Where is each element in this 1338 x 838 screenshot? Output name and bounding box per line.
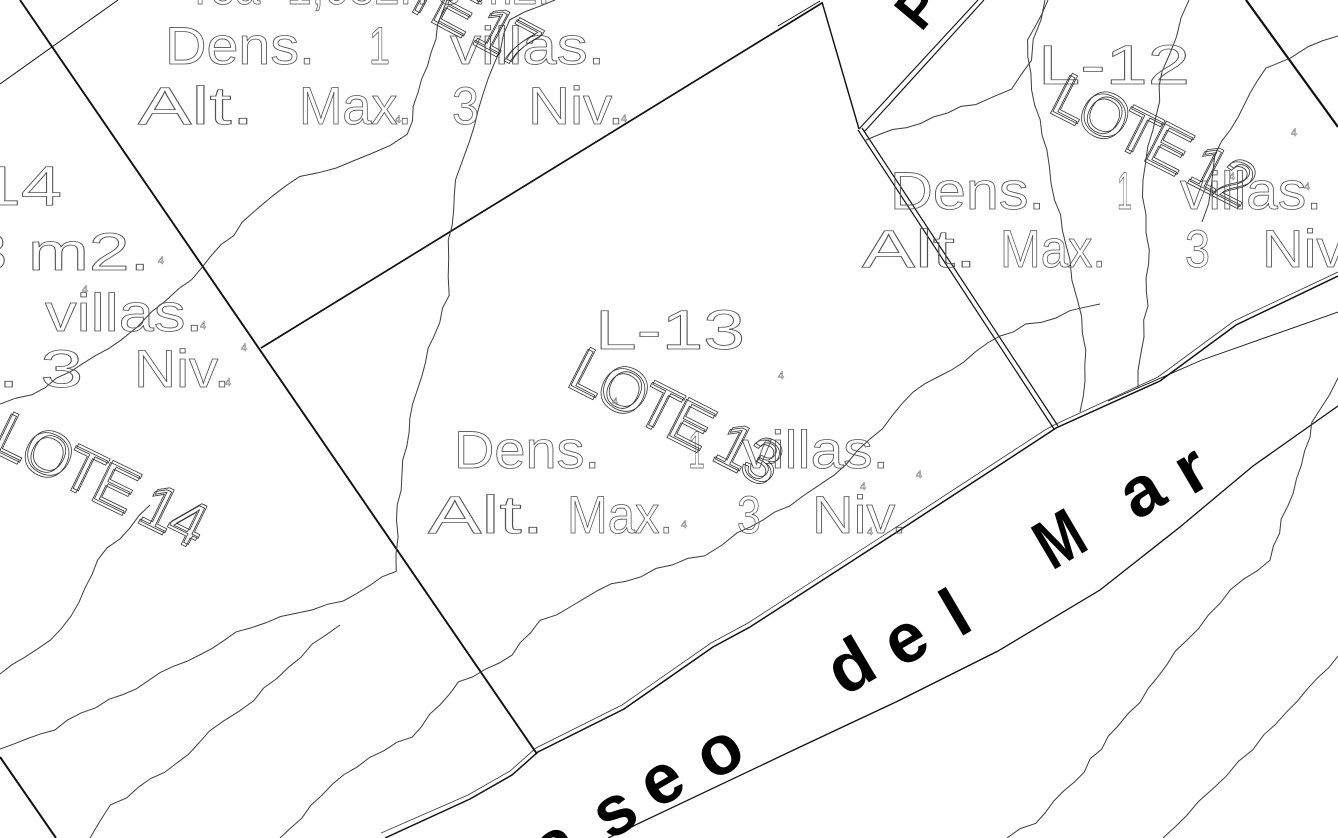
svg-text:4: 4 (82, 284, 88, 296)
svg-text:Niv.: Niv. (812, 486, 907, 545)
svg-text:Alt.: Alt. (138, 77, 254, 136)
svg-text:Max.: Max. (567, 486, 673, 545)
svg-text:4: 4 (778, 370, 784, 382)
svg-text:4: 4 (612, 396, 618, 408)
svg-text:1: 1 (688, 421, 705, 480)
svg-text:4: 4 (860, 481, 866, 493)
svg-text:4: 4 (200, 320, 206, 332)
svg-text:L-14: L-14 (0, 154, 62, 217)
svg-text:Max.: Max. (1000, 220, 1106, 279)
svg-text:villas.: villas. (1180, 162, 1322, 221)
svg-text:villas.: villas. (45, 284, 203, 343)
svg-text:Dens.: Dens. (454, 421, 600, 480)
svg-text:4: 4 (681, 519, 687, 531)
svg-text:4: 4 (1229, 171, 1235, 183)
svg-text:Max.: Max. (299, 77, 412, 136)
svg-text:3: 3 (737, 486, 761, 545)
svg-text:Niv.: Niv. (1262, 220, 1338, 279)
svg-text:Dens.: Dens. (165, 17, 315, 76)
svg-text:Dens.: Dens. (890, 162, 1045, 221)
svg-text:3: 3 (452, 77, 479, 136)
svg-text:villas.: villas. (742, 421, 889, 480)
svg-text:4: 4 (916, 469, 922, 481)
svg-text:4: 4 (158, 255, 164, 267)
svg-text:4: 4 (1291, 127, 1297, 139)
svg-text:4: 4 (867, 526, 873, 538)
svg-text:Alt.: Alt. (862, 220, 977, 279)
svg-text:4: 4 (621, 113, 627, 125)
svg-text:4: 4 (225, 377, 231, 389)
svg-text:. 3: . 3 (0, 340, 83, 399)
svg-text:Niv.: Niv. (134, 340, 230, 399)
svg-text:4: 4 (241, 342, 247, 354)
svg-text:Alt.: Alt. (428, 486, 544, 545)
svg-text:3: 3 (1185, 220, 1210, 279)
svg-text:Niv.: Niv. (528, 77, 624, 136)
svg-text:1: 1 (369, 17, 390, 76)
svg-text:83 m2.: 83 m2. (0, 223, 150, 282)
svg-text:4: 4 (395, 114, 401, 126)
svg-text:4: 4 (1304, 181, 1310, 193)
svg-text:1: 1 (1117, 162, 1132, 221)
